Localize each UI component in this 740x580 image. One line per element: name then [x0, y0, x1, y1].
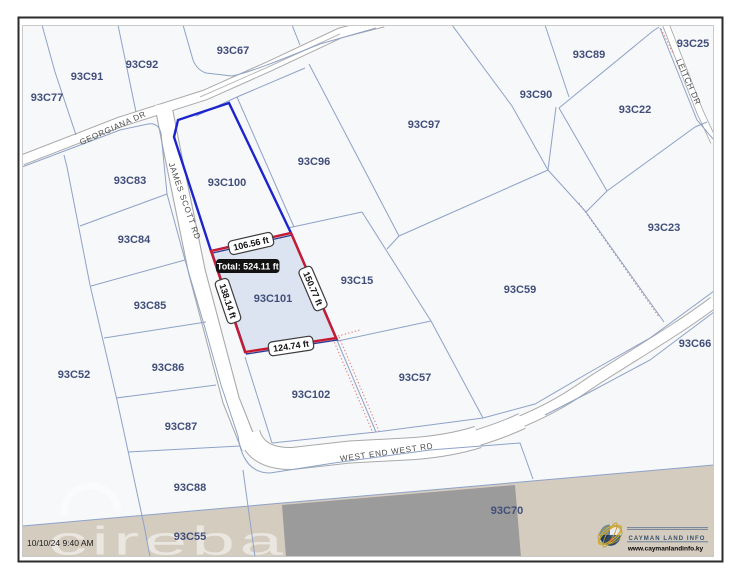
svg-text:93C70: 93C70: [491, 505, 523, 517]
svg-text:93C102: 93C102: [292, 389, 331, 401]
svg-text:93C88: 93C88: [174, 482, 206, 494]
svg-text:Total: 524.11 ft: Total: 524.11 ft: [217, 261, 279, 271]
svg-text:93C77: 93C77: [31, 92, 63, 104]
svg-text:93C83: 93C83: [114, 175, 146, 187]
svg-text:93C86: 93C86: [152, 362, 184, 374]
svg-text:CAYMAN LAND INFO: CAYMAN LAND INFO: [629, 536, 706, 542]
svg-text:93C15: 93C15: [341, 275, 373, 287]
svg-text:10/10/24 9:40 AM: 10/10/24 9:40 AM: [27, 538, 94, 548]
svg-text:93C89: 93C89: [573, 49, 605, 61]
svg-text:93C91: 93C91: [71, 71, 103, 83]
svg-text:93C22: 93C22: [619, 104, 651, 116]
svg-text:93C85: 93C85: [134, 300, 166, 312]
svg-text:93C92: 93C92: [126, 59, 158, 71]
svg-text:93C90: 93C90: [520, 89, 552, 101]
svg-text:93C84: 93C84: [118, 234, 151, 246]
svg-text:93C101: 93C101: [254, 293, 293, 305]
svg-text:93C100: 93C100: [208, 177, 247, 189]
svg-text:93C67: 93C67: [217, 45, 249, 57]
svg-text:93C66: 93C66: [679, 338, 711, 350]
svg-text:93C87: 93C87: [165, 421, 197, 433]
svg-text:www.caymanlandinfo.ky: www.caymanlandinfo.ky: [627, 546, 704, 553]
svg-text:93C57: 93C57: [399, 372, 431, 384]
svg-text:93C55: 93C55: [174, 531, 206, 543]
svg-text:93C52: 93C52: [58, 369, 90, 381]
svg-text:93C97: 93C97: [408, 119, 440, 131]
svg-text:93C25: 93C25: [677, 38, 709, 50]
svg-text:93C96: 93C96: [298, 156, 330, 168]
svg-text:93C59: 93C59: [504, 284, 536, 296]
svg-text:93C23: 93C23: [648, 222, 680, 234]
